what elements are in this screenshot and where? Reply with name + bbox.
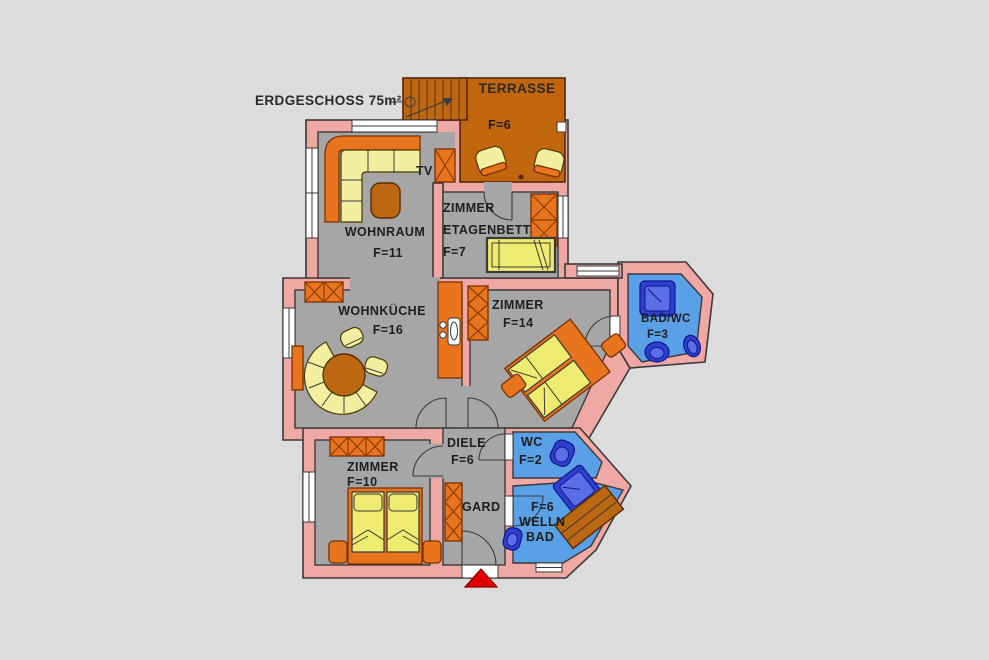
room-label-bad-wc: BAD/WC xyxy=(641,314,691,326)
room-label-gard: GARD xyxy=(462,501,500,514)
area-terrasse: F=6 xyxy=(488,119,511,132)
terrace-table-dot xyxy=(519,175,524,180)
door-gap-terrace xyxy=(484,182,512,193)
room-label-wc: WC xyxy=(521,436,543,449)
room-label-etagenbett-2: ETAGENBETT xyxy=(443,224,531,237)
floor-plan-page: ERDGESCHOSS 75m² TERRASSE F=6 WOHNRAUM F… xyxy=(0,0,989,660)
hob-knob xyxy=(440,322,446,328)
passage-wohnraum-kueche xyxy=(350,277,440,291)
terrace-notch xyxy=(557,122,566,132)
room-label-wellness-1: WELLN xyxy=(519,516,565,529)
area-etagenbett: F=7 xyxy=(443,246,466,259)
coffee-table xyxy=(371,183,400,218)
hob-knob xyxy=(440,332,446,338)
kitchen-cabinet-west xyxy=(292,346,303,390)
nightstand-sued xyxy=(423,541,441,563)
floor-title: ERDGESCHOSS 75m² xyxy=(255,94,402,108)
area-zimmer-sued: F=10 xyxy=(347,476,377,489)
floor-plan-drawing xyxy=(0,0,989,660)
area-wohnraum: F=11 xyxy=(373,247,403,260)
tv-label: TV xyxy=(416,165,433,178)
area-bad-wc: F=3 xyxy=(647,330,668,342)
area-wellness: F=6 xyxy=(531,501,554,514)
nightstand-sued xyxy=(329,541,347,563)
room-label-diele: DIELE xyxy=(447,437,486,450)
area-wc: F=2 xyxy=(519,454,542,467)
room-label-zimmer-sued: ZIMMER xyxy=(347,461,399,474)
room-label-wellness-2: BAD xyxy=(526,531,554,544)
room-label-terrasse: TERRASSE xyxy=(479,82,556,96)
room-label-zimmer-ost: ZIMMER xyxy=(492,299,544,312)
room-label-wohnraum: WOHNRAUM xyxy=(345,226,425,239)
wall-wohnraum-zimmer xyxy=(433,183,443,278)
area-diele: F=6 xyxy=(451,454,474,467)
area-zimmer-ost: F=14 xyxy=(503,317,533,330)
passage-kueche-diele xyxy=(460,386,472,428)
room-label-wohnkueche: WOHNKÜCHE xyxy=(338,305,426,318)
room-label-etagenbett-1: ZIMMER xyxy=(443,202,495,215)
area-wohnkueche: F=16 xyxy=(373,324,403,337)
